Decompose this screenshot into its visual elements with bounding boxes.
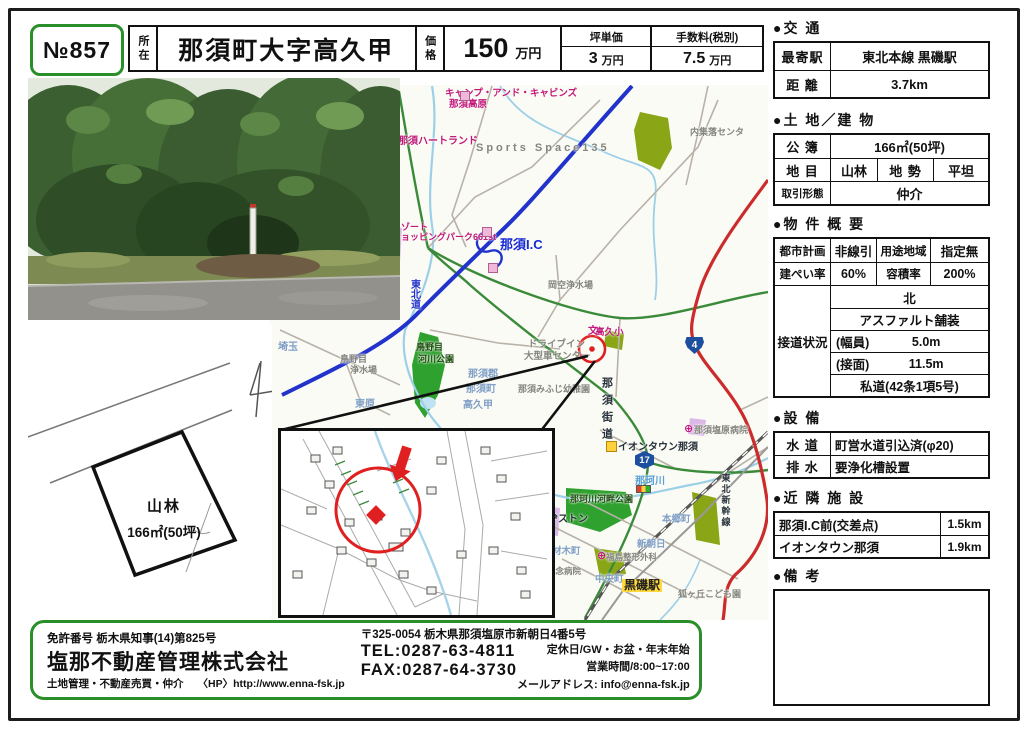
map-label: 河川公園 — [418, 355, 454, 364]
site-photo-trees — [28, 78, 400, 320]
header-table: 所在 那須町大字高久甲 価格 150 万円 坪単価 3 万円 手数料(税別) 7… — [128, 25, 764, 72]
map-label: 那須郡 — [468, 370, 498, 381]
fee-value: 7.5 — [683, 50, 705, 68]
business-hours: 営業時間/8:00~17:00 — [517, 659, 690, 676]
row-label: (幅員) — [836, 332, 869, 351]
map-marker-hospital-icon: ⊕ — [597, 551, 606, 562]
listing-number: №857 — [43, 37, 111, 64]
map-marker-poi-icon — [482, 227, 492, 237]
price-amount: 150 — [463, 33, 508, 64]
road-contact-block: 接道状況 北 アスファルト舗装 (幅員) 5.0m (接面) 11.5m 私道(… — [775, 285, 988, 396]
map-marker-school-icon: 文 — [588, 327, 598, 337]
row-label: 那須I.C前(交差点) — [775, 513, 940, 535]
inset-buildings — [293, 447, 530, 598]
road-direction: 北 — [831, 286, 988, 308]
license-number: 免許番号 栃木県知事(14)第825号 — [47, 630, 345, 646]
company-name: 塩那不動産管理株式会社 — [47, 646, 345, 676]
fee-cell: 7.5 万円 — [652, 47, 762, 70]
fee-label: 手数料(税別) — [652, 27, 762, 47]
section-title-transport: ●交 通 — [773, 18, 990, 38]
row-value: 1.5km — [940, 513, 988, 535]
company-website: 〈HP〉http://www.enna-fsk.jp — [198, 676, 345, 691]
fee-column: 手数料(税別) 7.5 万円 — [652, 27, 762, 70]
table-row: 都市計画 非線引 用途地域 指定無 — [775, 239, 988, 262]
fax-number: FAX:0287-64-3730 — [361, 661, 517, 680]
location-value: 那須町大字高久甲 — [158, 27, 417, 70]
map-label: 東北新幹線 — [720, 473, 729, 528]
section-land: ●土 地／建 物 公 簿 166㎡(50坪) 地 目 山林 地 勢 平坦 取引形… — [773, 110, 990, 206]
listing-number-badge: №857 — [30, 24, 124, 76]
table-row: 公 簿 166㎡(50坪) — [775, 135, 988, 158]
row-value: 非線引 — [831, 239, 877, 262]
section-nearby: ●近 隣 施 設 那須I.C前(交差点) 1.5km イオンタウン那須 1.9k… — [773, 488, 990, 559]
map-label: 那須ハートランド — [398, 137, 478, 148]
contact-block: 〒325-0054 栃木県那須塩原市新朝日4番5号 TEL:0287-63-48… — [361, 626, 690, 693]
row-value: 166㎡(50坪) — [831, 135, 988, 158]
map-label: 狐ヶ丘こども園 — [678, 590, 741, 599]
company-block: 免許番号 栃木県知事(14)第825号 塩那不動産管理株式会社 土地管理・不動産… — [47, 630, 345, 691]
row-value: 11.5m — [869, 357, 983, 371]
company-footer: 免許番号 栃木県知事(14)第825号 塩那不動産管理株式会社 土地管理・不動産… — [30, 620, 702, 700]
lot-land-type: 山林 — [124, 495, 204, 516]
detail-inset-map — [278, 428, 555, 618]
unit-price-cell: 3 万円 — [562, 47, 650, 70]
map-label: 中央町 — [595, 575, 624, 585]
north-arrow-icon — [250, 361, 272, 417]
map-label: Sports Space135 — [476, 143, 610, 155]
price-unit: 万円 — [515, 43, 541, 62]
row-value: 山林 — [831, 159, 878, 181]
map-label: イオンタウン那須 — [618, 443, 698, 454]
table-row: 取引形態 仲介 — [775, 181, 988, 204]
section-title-equipment: ●設 備 — [773, 408, 990, 428]
row-value: 60% — [831, 263, 877, 285]
table-row: 建ぺい率 60% 容積率 200% — [775, 262, 988, 285]
unit-price-column: 坪単価 3 万円 — [562, 27, 652, 70]
section-title-nearby: ●近 隣 施 設 — [773, 488, 990, 508]
row-value: 指定無 — [931, 239, 988, 262]
price-label: 価格 — [417, 27, 445, 70]
map-label: 那須みふじ幼稚園 — [518, 385, 590, 394]
row-label: (接面) — [836, 354, 869, 373]
map-label: 黒磯駅 — [622, 579, 662, 592]
table-row: 距 離 3.7km — [775, 70, 988, 97]
row-value: 5.0m — [869, 335, 983, 349]
row-label: 公 簿 — [775, 135, 831, 158]
site-photo — [28, 78, 400, 320]
row-value: 東北本線 黒磯駅 — [831, 43, 988, 70]
map-label: 鳥野目 — [416, 343, 443, 352]
row-value: 1.9km — [940, 536, 988, 557]
row-label: 容積率 — [877, 263, 931, 285]
map-marker-poi-icon — [460, 91, 470, 101]
fee-unit: 万円 — [709, 52, 731, 68]
inset-arrow-icon — [385, 444, 417, 485]
map-label: 岡空浄水場 — [548, 281, 593, 290]
map-label: 福島整形外科 — [606, 553, 657, 562]
unit-price-value: 3 — [589, 50, 598, 68]
row-label: 接道状況 — [775, 286, 831, 396]
map-label: 材木町 — [552, 547, 581, 557]
map-label: 那珂川河畔公園 — [570, 495, 633, 504]
section-remarks: ●備 考 — [773, 566, 990, 706]
lot-sketch-drawing — [28, 325, 272, 615]
inset-map-graphics — [281, 431, 552, 615]
map-label: 東北道 — [408, 279, 419, 309]
map-label: 鳥野目 — [340, 355, 367, 364]
row-value: 200% — [931, 263, 988, 285]
road-frontage-row: (接面) 11.5m — [831, 352, 988, 374]
map-marker-poi-icon — [488, 263, 498, 273]
row-label: 都市計画 — [775, 239, 831, 262]
map-label: 浄水場 — [350, 366, 377, 375]
section-overview: ●物 件 概 要 都市計画 非線引 用途地域 指定無 建ぺい率 60% 容積率 … — [773, 214, 990, 398]
map-label: ドライブイン — [528, 340, 585, 350]
section-equipment: ●設 備 水 道 町営水道引込済(φ20) 排 水 要浄化槽設置 — [773, 408, 990, 479]
phone-number: TEL:0287-63-4811 — [361, 642, 517, 661]
section-transport: ●交 通 最寄駅 東北本線 黒磯駅 距 離 3.7km — [773, 18, 990, 99]
section-title-remarks: ●備 考 — [773, 566, 990, 586]
email-address: メールアドレス: info@enna-fsk.jp — [517, 677, 690, 694]
section-title-land: ●土 地／建 物 — [773, 110, 990, 130]
map-label: 新朝日 — [637, 540, 666, 550]
row-value: 仲介 — [831, 182, 988, 204]
row-value: 3.7km — [831, 71, 988, 97]
table-row: 地 目 山林 地 勢 平坦 — [775, 158, 988, 181]
map-label: ショッピングパーク661st — [392, 233, 496, 242]
map-label: 那須塩原病院 — [694, 426, 748, 435]
row-label: 水 道 — [775, 433, 831, 455]
map-marker-signal-icon — [636, 485, 651, 493]
unit-price-label: 坪単価 — [562, 27, 650, 47]
map-label: 東原 — [355, 400, 375, 411]
map-marker-store-icon — [606, 441, 617, 452]
table-row: 那須I.C前(交差点) 1.5km — [775, 513, 988, 535]
map-label: 那須高原 — [449, 100, 487, 110]
map-marker-shield4-icon: 4 — [685, 337, 704, 354]
road-pavement: アスファルト舗装 — [831, 308, 988, 330]
row-label: 建ぺい率 — [775, 263, 831, 285]
map-label: 高久小 — [595, 328, 624, 338]
table-row: 水 道 町営水道引込済(φ20) — [775, 433, 988, 455]
row-label: 地 目 — [775, 159, 831, 181]
row-label: イオンタウン那須 — [775, 536, 940, 557]
location-label: 所在 — [130, 27, 158, 70]
map-label: 埼玉 — [278, 343, 298, 354]
map-label: 那須街道 — [600, 377, 612, 445]
unit-price-unit: 万円 — [602, 52, 624, 68]
row-value: 平坦 — [934, 159, 988, 181]
map-label: 高久甲 — [463, 401, 493, 412]
map-label: 内集落センタ — [690, 128, 744, 137]
row-label: 距 離 — [775, 71, 831, 97]
map-label: 那須I.C — [500, 238, 543, 252]
map-label: 本郷町 — [662, 515, 691, 525]
map-label: 大型車センター — [524, 352, 591, 362]
section-title-overview: ●物 件 概 要 — [773, 214, 990, 234]
lot-area: 166㎡(50坪) — [94, 521, 234, 541]
map-label: 那須町 — [466, 385, 496, 396]
row-label: 最寄駅 — [775, 43, 831, 70]
price-cell: 150 万円 — [445, 27, 563, 70]
road-type: 私道(42条1項5号) — [831, 374, 988, 396]
row-value: 要浄化槽設置 — [831, 456, 988, 477]
map-marker-shield17-icon: 17 — [635, 451, 654, 469]
row-label: 用途地域 — [877, 239, 931, 262]
row-label: 地 勢 — [878, 159, 934, 181]
table-row: 最寄駅 東北本線 黒磯駅 — [775, 43, 988, 70]
row-value: 町営水道引込済(φ20) — [831, 433, 988, 455]
company-address: 〒325-0054 栃木県那須塩原市新朝日4番5号 — [361, 626, 690, 642]
company-services: 土地管理・不動産売買・仲介 — [47, 676, 184, 691]
map-marker-hospital-icon: ⊕ — [684, 424, 693, 435]
row-label: 取引形態 — [775, 182, 831, 204]
remarks-box — [773, 589, 990, 706]
road-width-row: (幅員) 5.0m — [831, 330, 988, 352]
lot-sketch: 山林 166㎡(50坪) — [28, 325, 272, 615]
closed-days: 定休日/GW・お盆・年末年始 — [517, 642, 690, 659]
row-label: 排 水 — [775, 456, 831, 477]
table-row: 排 水 要浄化槽設置 — [775, 455, 988, 477]
table-row: イオンタウン那須 1.9km — [775, 535, 988, 557]
right-panel: ●交 通 最寄駅 東北本線 黒磯駅 距 離 3.7km ●土 地／建 物 公 簿… — [773, 10, 990, 712]
